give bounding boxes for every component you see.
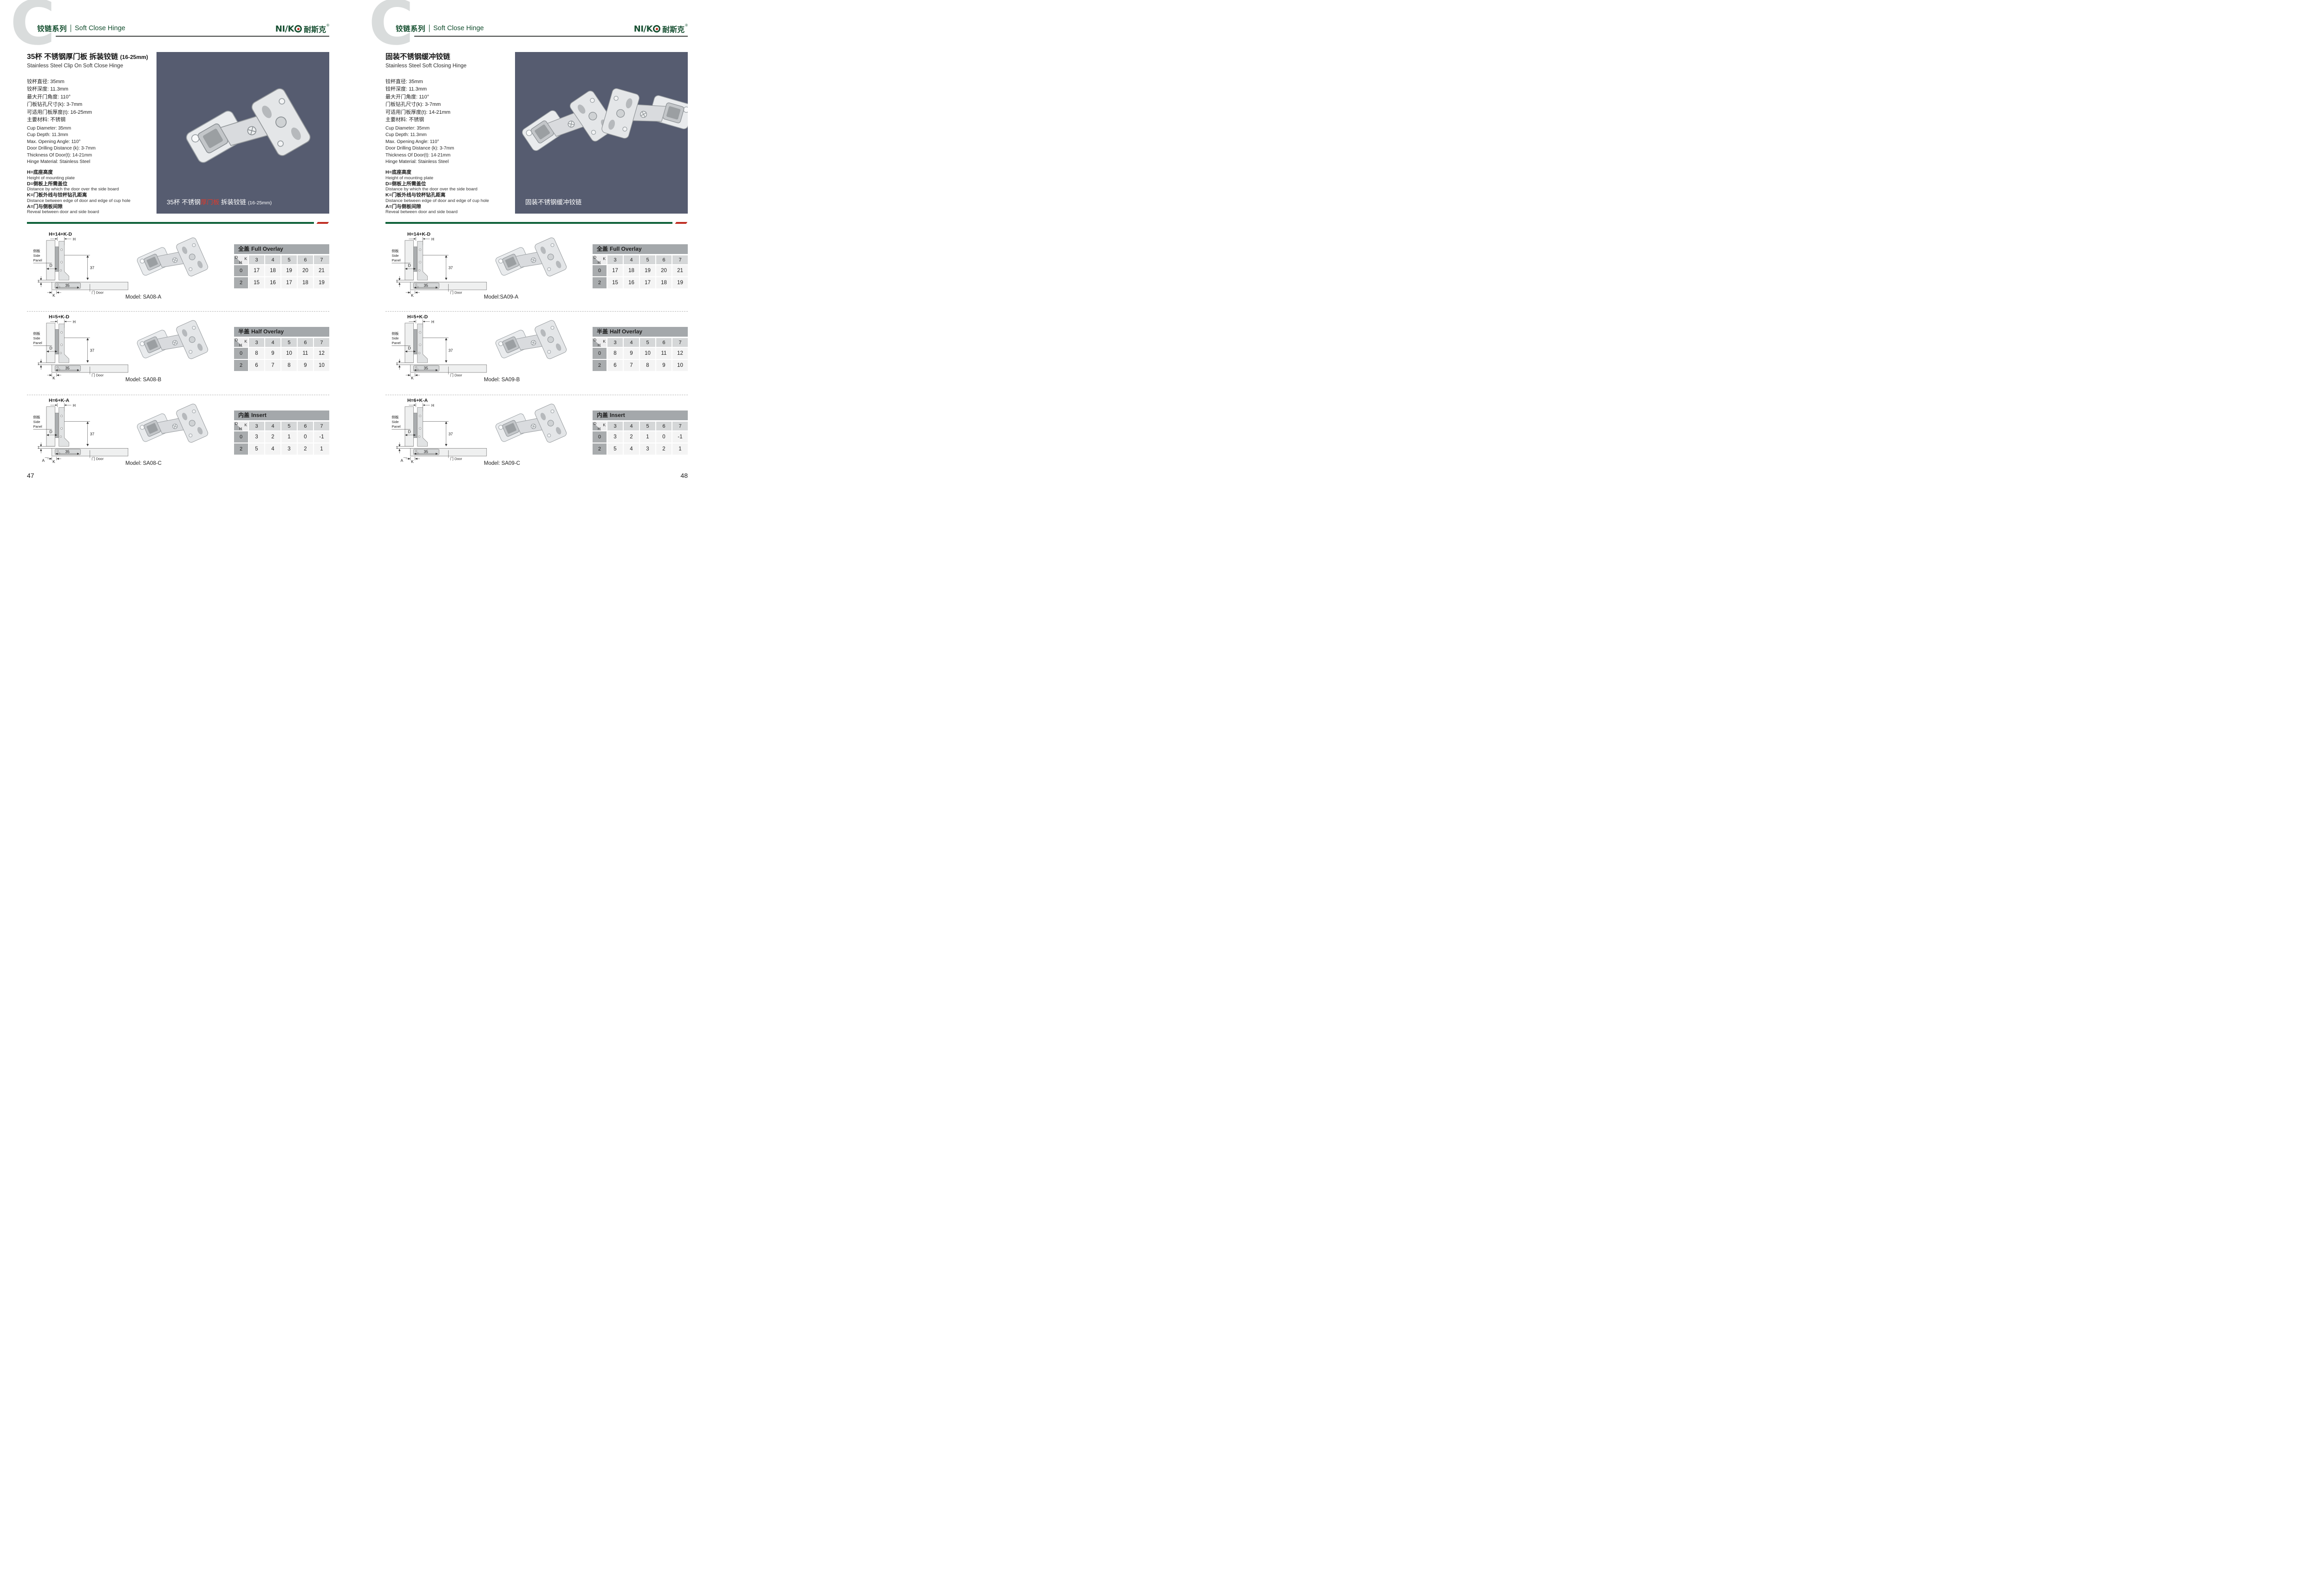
spec-line: 铰杯直径: 35mm: [27, 78, 92, 85]
legend-cn: K=门板外线与铰杯钻孔距离: [27, 193, 130, 198]
svg-text:37: 37: [90, 432, 95, 436]
table-cell: 9: [624, 348, 639, 359]
svg-text:Side: Side: [392, 254, 399, 258]
col-header: 6: [298, 422, 313, 430]
row-header: 0: [593, 431, 607, 443]
table-cell: 10: [281, 348, 297, 359]
series-title-en: Soft Close Hinge: [75, 25, 125, 32]
spec-line: 铰杯深度: 11.3mm: [385, 85, 450, 93]
table-corner-cell: DKH: [234, 422, 248, 430]
svg-text:K: K: [52, 376, 55, 380]
col-header: 3: [249, 338, 264, 347]
svg-text:侧板: 侧板: [392, 331, 399, 336]
svg-text:D: D: [50, 263, 52, 268]
hinge-product-photo: [133, 315, 211, 372]
svg-text:37: 37: [449, 348, 453, 353]
table-cell: 20: [298, 265, 313, 276]
table-cell: 2: [624, 431, 639, 443]
table-cell: 15: [607, 277, 623, 288]
table-cell: 9: [298, 360, 313, 371]
spec-line: Thickness Of Door(t): 14-21mm: [27, 152, 96, 159]
svg-text:37: 37: [90, 266, 95, 270]
table-cell: 5: [607, 443, 623, 455]
table-cell: 19: [281, 265, 297, 276]
spec-row-half-overlay: H=5+K-D H 侧板 Side Panel 37 D: [27, 311, 329, 395]
col-header: 4: [624, 422, 639, 430]
col-header: 7: [314, 422, 329, 430]
col-header: 7: [314, 338, 329, 347]
col-header: 7: [672, 422, 688, 430]
svg-text:H=14+K-D: H=14+K-D: [49, 232, 72, 237]
table-cell: 9: [265, 348, 280, 359]
table-cell: 19: [640, 265, 655, 276]
table-cell: 8: [249, 348, 264, 359]
svg-text:37: 37: [449, 432, 453, 436]
svg-text:D: D: [50, 430, 52, 434]
svg-text:H: H: [431, 403, 434, 408]
table-cell: -1: [672, 431, 688, 443]
legend-en: Distance between edge of door and edge o…: [27, 198, 130, 203]
table-corner-cell: DKH: [593, 422, 607, 430]
col-header: 3: [607, 255, 623, 264]
table-cell: 10: [640, 348, 655, 359]
table-cell: 16: [624, 277, 639, 288]
page-header: 铰链系列 Soft Close Hinge: [37, 23, 125, 33]
svg-text:K: K: [411, 293, 414, 297]
svg-text:侧板: 侧板: [392, 248, 399, 253]
svg-text:H=6+K-A: H=6+K-A: [49, 398, 70, 404]
spec-line: Hinge Material: Stainless Steel: [385, 159, 454, 165]
svg-text:Panel: Panel: [33, 341, 43, 345]
col-header: 5: [281, 422, 297, 430]
col-header: 7: [672, 338, 688, 347]
hinge-product-photo: [133, 232, 211, 290]
model-label: Model: SA08-C: [125, 461, 162, 466]
legend-en: Reveal between door and side board: [385, 209, 489, 215]
spec-line: Door Drilling Distance (k): 3-7mm: [27, 145, 96, 152]
legend-en: Reveal between door and side board: [27, 209, 130, 215]
svg-text:35: 35: [65, 449, 70, 454]
registered-mark: ®: [326, 23, 329, 27]
col-header: 6: [656, 338, 672, 347]
table-cell: 3: [640, 443, 655, 455]
table-cell: 6: [249, 360, 264, 371]
divider-red: [317, 222, 329, 224]
legend-en: Height of mounting plate: [385, 176, 489, 181]
table-cell: 18: [656, 277, 672, 288]
spec-row-full-overlay: H=14+K-D H 侧板 Side Panel 37 D: [385, 228, 688, 312]
table-cell: 1: [672, 443, 688, 455]
table-cell: 21: [314, 265, 329, 276]
model-label: Model:SA09-A: [484, 294, 518, 300]
model-label: Model: SA09-C: [484, 461, 520, 466]
page-number: 48: [680, 472, 688, 479]
svg-text:K: K: [411, 459, 414, 463]
table-cell: -1: [314, 431, 329, 443]
svg-text:Side: Side: [33, 254, 40, 258]
svg-text:D: D: [408, 263, 411, 268]
model-label: Model: SA09-B: [484, 377, 520, 383]
svg-text:H=5+K-D: H=5+K-D: [49, 315, 70, 320]
col-header: 6: [298, 338, 313, 347]
logo-red-dot-icon: [656, 28, 658, 30]
product-subtitle: Stainless Steel Clip On Soft Close Hinge: [27, 63, 123, 69]
series-title-cn: 铰链系列: [37, 23, 67, 33]
spec-line: Door Drilling Distance (k): 3-7mm: [385, 145, 454, 152]
spec-line: Max. Opening Angle: 110°: [27, 139, 96, 145]
spec-row-half-overlay: H=5+K-D H 侧板 Side Panel 37 D: [385, 311, 688, 395]
svg-text:H: H: [73, 403, 76, 408]
product-subtitle: Stainless Steel Soft Closing Hinge: [385, 63, 467, 69]
table-cell: 4: [265, 443, 280, 455]
table-cell: 11: [656, 348, 672, 359]
col-header: 7: [672, 255, 688, 264]
table-cell: 17: [281, 277, 297, 288]
table-cell: 17: [607, 265, 623, 276]
legend-en: Distance by which the door over the side…: [385, 187, 489, 192]
svg-text:35: 35: [424, 283, 429, 287]
catalog-spread: C 铰链系列 Soft Close Hinge NI∕K 耐斯克 ® 35杯 不…: [0, 0, 717, 489]
row-header: 0: [593, 265, 607, 276]
section-divider: [385, 222, 688, 224]
table-cell: 15: [249, 277, 264, 288]
insert-table: 内盖Insert DKH 3 4 5 6 7 0 3 2 1 0 -1 2 5 …: [234, 410, 329, 455]
row-header: 2: [593, 443, 607, 455]
svg-text:门 Door: 门 Door: [450, 456, 462, 461]
hinge-product-photo: [491, 398, 569, 456]
divider-green: [27, 222, 314, 224]
table-cell: 11: [298, 348, 313, 359]
legend-cn: H=底座高度: [385, 170, 489, 176]
svg-text:H=6+K-A: H=6+K-A: [407, 398, 428, 404]
table-cell: 19: [672, 277, 688, 288]
row-header: 2: [593, 360, 607, 371]
svg-text:D: D: [408, 346, 411, 351]
spec-line: 门板钻孔尺寸(k): 3-7mm: [385, 101, 450, 108]
table-cell: 3: [249, 431, 264, 443]
logo-red-dot-icon: [297, 28, 300, 30]
nisko-logo: NI∕K 耐斯克 ®: [275, 23, 329, 34]
table-cell: 18: [298, 277, 313, 288]
catalog-page-left: C 铰链系列 Soft Close Hinge NI∕K 耐斯克 ® 35杯 不…: [0, 0, 358, 489]
installation-diagram: H=5+K-D H 侧板 Side Panel 37 D: [32, 313, 133, 380]
spec-line: Thickness Of Door(t): 14-21mm: [385, 152, 454, 159]
product-title: 固装不锈钢缓冲铰链: [385, 51, 450, 61]
table-cell: 12: [314, 348, 329, 359]
table-cell: 19: [314, 277, 329, 288]
table-cell: 20: [656, 265, 672, 276]
col-header: 5: [281, 255, 297, 264]
row-header: 2: [593, 277, 607, 288]
table-cell: 10: [314, 360, 329, 371]
table-corner-cell: DKH: [593, 338, 607, 347]
svg-text:侧板: 侧板: [33, 415, 41, 419]
svg-text:侧板: 侧板: [33, 331, 41, 336]
half-overlay-table: 半盖Half Overlay DKH 3 4 5 6 7 0 8 9 10 11…: [234, 327, 329, 371]
reveal-dimension: A: [42, 457, 49, 463]
half-overlay-table: 半盖Half Overlay DKH 3 4 5 6 7 0 8 9 10 11…: [593, 327, 688, 371]
table-cell: 10: [672, 360, 688, 371]
svg-text:1: 1: [38, 279, 39, 283]
svg-text:Side: Side: [392, 336, 399, 340]
table-cell: 4: [624, 443, 639, 455]
spec-line: Cup Depth: 11.3mm: [27, 132, 96, 138]
svg-text:门 Door: 门 Door: [91, 290, 104, 294]
svg-text:D: D: [50, 346, 52, 351]
brand-wordmark: NI∕K: [634, 24, 652, 34]
svg-text:Panel: Panel: [33, 258, 43, 262]
legend-en: Distance between edge of door and edge o…: [385, 198, 489, 203]
table-cell: 12: [672, 348, 688, 359]
catalog-page-right: C 铰链系列 Soft Close Hinge NI∕K 耐斯克 ® 固装不锈钢…: [359, 0, 717, 489]
table-cell: 2: [298, 443, 313, 455]
table-cell: 1: [640, 431, 655, 443]
row-header: 0: [234, 265, 248, 276]
specs-english: Cup Diameter: 35mm Cup Depth: 11.3mm Max…: [27, 125, 96, 165]
table-title: 内盖Insert: [234, 410, 329, 420]
spec-line: 门板钻孔尺寸(k): 3-7mm: [27, 101, 92, 108]
row-header: 2: [234, 443, 248, 455]
col-header: 7: [314, 255, 329, 264]
logo-o-icon: [653, 25, 660, 33]
col-header: 3: [607, 422, 623, 430]
svg-text:H: H: [431, 319, 434, 324]
svg-text:K: K: [52, 293, 55, 297]
model-label: Model: SA08-B: [125, 377, 161, 383]
col-header: 3: [607, 338, 623, 347]
registered-mark: ®: [685, 23, 688, 27]
svg-text:A: A: [42, 458, 45, 463]
brand-wordmark: NI∕K: [275, 24, 294, 34]
table-cell: 8: [281, 360, 297, 371]
table-cell: 18: [265, 265, 280, 276]
divider-red: [675, 222, 688, 224]
svg-text:H: H: [73, 319, 76, 324]
svg-text:Panel: Panel: [33, 424, 43, 429]
svg-text:Side: Side: [33, 336, 40, 340]
spec-line: Cup Depth: 11.3mm: [385, 132, 454, 138]
svg-text:侧板: 侧板: [33, 248, 41, 253]
hinge-photo-illustration: [515, 52, 688, 214]
page-number: 47: [27, 472, 34, 479]
svg-text:Panel: Panel: [392, 424, 401, 429]
table-cell: 1: [314, 443, 329, 455]
table-cell: 16: [265, 277, 280, 288]
product-photo: 固装不锈钢缓冲铰链: [515, 52, 688, 214]
installation-diagram: H=5+K-D H 侧板 Side Panel 37 D: [390, 313, 491, 380]
row-header: 0: [234, 348, 248, 359]
logo-o-icon: [294, 25, 302, 33]
full-overlay-table: 全盖Full Overlay DKH 3 4 5 6 7 0 17 18 19 …: [593, 244, 688, 288]
svg-text:A: A: [400, 458, 403, 463]
table-cell: 0: [656, 431, 672, 443]
row-header: 2: [234, 277, 248, 288]
table-cell: 21: [672, 265, 688, 276]
col-header: 5: [281, 338, 297, 347]
table-cell: 3: [281, 443, 297, 455]
col-header: 4: [624, 255, 639, 264]
svg-text:H: H: [73, 237, 76, 241]
installation-diagram: H=6+K-A H 侧板 Side Panel 37 D: [32, 397, 133, 463]
svg-text:门 Door: 门 Door: [91, 373, 104, 377]
table-cell: 1: [281, 431, 297, 443]
svg-text:1: 1: [396, 445, 398, 449]
svg-text:侧板: 侧板: [392, 415, 399, 419]
svg-text:H=14+K-D: H=14+K-D: [407, 232, 430, 237]
svg-text:1: 1: [38, 445, 39, 449]
spec-line: 最大开门角度: 110°: [385, 93, 450, 101]
table-cell: 2: [656, 443, 672, 455]
col-header: 4: [265, 422, 280, 430]
svg-text:35: 35: [65, 365, 70, 370]
table-corner-cell: DKH: [593, 255, 607, 264]
svg-text:门 Door: 门 Door: [450, 290, 462, 294]
svg-text:35: 35: [65, 283, 70, 287]
col-header: 5: [640, 255, 655, 264]
installation-diagram: H=6+K-A H 侧板 Side Panel 37 D: [390, 397, 491, 463]
nisko-logo: NI∕K 耐斯克 ®: [634, 23, 688, 34]
legend-cn: K=门板外线与铰杯钻孔距离: [385, 193, 489, 198]
spec-line: Hinge Material: Stainless Steel: [27, 159, 96, 165]
table-cell: 7: [624, 360, 639, 371]
table-cell: 17: [249, 265, 264, 276]
product-photo: 35杯 不锈钢厚门板 拆装铰链 (16-25mm): [157, 52, 329, 214]
hinge-product-photo: [133, 398, 211, 456]
svg-text:1: 1: [396, 279, 398, 283]
legend-en: Distance by which the door over the side…: [27, 187, 130, 192]
svg-text:H: H: [431, 237, 434, 241]
dimension-legend: H=底座高度 Height of mounting plate D=侧板上所需盖…: [385, 169, 489, 215]
series-title-en: Soft Close Hinge: [433, 25, 484, 32]
spec-line: 主要材料: 不锈钢: [385, 116, 450, 124]
legend-cn: A=门与侧板间隙: [385, 204, 489, 210]
header-rule: [56, 36, 329, 37]
table-title: 内盖Insert: [593, 410, 688, 420]
svg-text:Side: Side: [33, 420, 40, 424]
spec-line: 可适用门板厚度(t): 14-21mm: [385, 109, 450, 116]
section-divider: [27, 222, 329, 224]
installation-diagram: H=14+K-D H 侧板 Side Panel 37 D: [390, 230, 491, 297]
spec-row-insert: H=6+K-A H 侧板 Side Panel 37 D: [27, 395, 329, 469]
spec-line: 可适用门板厚度(t): 16-25mm: [27, 109, 92, 116]
table-cell: 0: [298, 431, 313, 443]
table-title: 半盖Half Overlay: [234, 327, 329, 337]
brand-name-cn: 耐斯克: [304, 23, 326, 34]
brand-name-cn: 耐斯克: [662, 23, 685, 34]
specs-english: Cup Diameter: 35mm Cup Depth: 11.3mm Max…: [385, 125, 454, 165]
table-cell: 18: [624, 265, 639, 276]
svg-text:Panel: Panel: [392, 341, 401, 345]
table-cell: 2: [265, 431, 280, 443]
col-header: 4: [265, 338, 280, 347]
legend-cn: D=侧板上所需盖位: [27, 182, 130, 187]
svg-text:K: K: [52, 459, 55, 463]
spec-line: Cup Diameter: 35mm: [385, 125, 454, 132]
table-title: 半盖Half Overlay: [593, 327, 688, 337]
svg-text:35: 35: [424, 449, 429, 454]
photo-caption: 35杯 不锈钢厚门板 拆装铰链 (16-25mm): [167, 197, 272, 206]
insert-table: 内盖Insert DKH 3 4 5 6 7 0 3 2 1 0 -1 2 5 …: [593, 410, 688, 455]
spec-line: Cup Diameter: 35mm: [27, 125, 96, 132]
table-cell: 8: [607, 348, 623, 359]
series-separator: [71, 25, 71, 32]
table-cell: 9: [656, 360, 672, 371]
legend-cn: A=门与侧板间隙: [27, 204, 130, 210]
svg-text:门 Door: 门 Door: [450, 373, 462, 377]
legend-en: Height of mounting plate: [27, 176, 130, 181]
row-header: 0: [234, 431, 248, 443]
table-title: 全盖Full Overlay: [593, 244, 688, 254]
table-cell: 8: [640, 360, 655, 371]
legend-cn: H=底座高度: [27, 170, 130, 176]
page-header: 铰链系列 Soft Close Hinge: [396, 23, 484, 33]
hinge-photo-illustration: [157, 52, 329, 214]
series-separator: [429, 25, 430, 32]
table-cell: 7: [265, 360, 280, 371]
col-header: 6: [656, 255, 672, 264]
table-corner-cell: DKH: [234, 338, 248, 347]
table-title: 全盖Full Overlay: [234, 244, 329, 254]
table-cell: 3: [607, 431, 623, 443]
col-header: 5: [640, 338, 655, 347]
series-title-cn: 铰链系列: [396, 23, 425, 33]
col-header: 3: [249, 255, 264, 264]
svg-text:37: 37: [90, 348, 95, 353]
table-cell: 17: [640, 277, 655, 288]
dimension-legend: H=底座高度 Height of mounting plate D=侧板上所需盖…: [27, 169, 130, 215]
col-header: 4: [624, 338, 639, 347]
installation-diagram: H=14+K-D H 侧板 Side Panel 37 D: [32, 230, 133, 297]
photo-caption: 固装不锈钢缓冲铰链: [525, 197, 582, 206]
legend-cn: D=侧板上所需盖位: [385, 182, 489, 187]
svg-text:37: 37: [449, 266, 453, 270]
divider-green: [385, 222, 672, 224]
col-header: 6: [298, 255, 313, 264]
header-rule: [414, 36, 688, 37]
col-header: 4: [265, 255, 280, 264]
svg-text:35: 35: [424, 365, 429, 370]
svg-text:K: K: [411, 376, 414, 380]
spec-line: 铰杯直径: 35mm: [385, 78, 450, 85]
svg-text:1: 1: [396, 362, 398, 366]
svg-text:H=5+K-D: H=5+K-D: [407, 315, 428, 320]
model-label: Model: SA08-A: [125, 294, 161, 300]
spec-line: 主要材料: 不锈钢: [27, 116, 92, 124]
row-header: 0: [593, 348, 607, 359]
product-title: 35杯 不锈钢厚门板 拆装铰链 (16-25mm): [27, 51, 148, 61]
svg-text:Panel: Panel: [392, 258, 401, 262]
spec-line: 最大开门角度: 110°: [27, 93, 92, 101]
hinge-product-photo: [491, 315, 569, 372]
spec-line: 铰杯深度: 11.3mm: [27, 85, 92, 93]
table-cell: 5: [249, 443, 264, 455]
spec-row-insert: H=6+K-A H 侧板 Side Panel 37 D: [385, 395, 688, 469]
specs-chinese: 铰杯直径: 35mm 铰杯深度: 11.3mm 最大开门角度: 110° 门板钻…: [27, 78, 92, 124]
spec-line: Max. Opening Angle: 110°: [385, 139, 454, 145]
col-header: 3: [249, 422, 264, 430]
svg-text:1: 1: [38, 362, 39, 366]
spec-row-full-overlay: H=14+K-D H 侧板 Side Panel 37 D: [27, 228, 329, 312]
specs-chinese: 铰杯直径: 35mm 铰杯深度: 11.3mm 最大开门角度: 110° 门板钻…: [385, 78, 450, 124]
hinge-product-photo: [491, 232, 569, 290]
svg-text:门 Door: 门 Door: [91, 456, 104, 461]
col-header: 5: [640, 422, 655, 430]
svg-text:D: D: [408, 430, 411, 434]
svg-text:Side: Side: [392, 420, 399, 424]
table-corner-cell: DKH: [234, 255, 248, 264]
full-overlay-table: 全盖Full Overlay DKH 3 4 5 6 7 0 17 18 19 …: [234, 244, 329, 288]
reveal-dimension: A: [400, 457, 407, 463]
